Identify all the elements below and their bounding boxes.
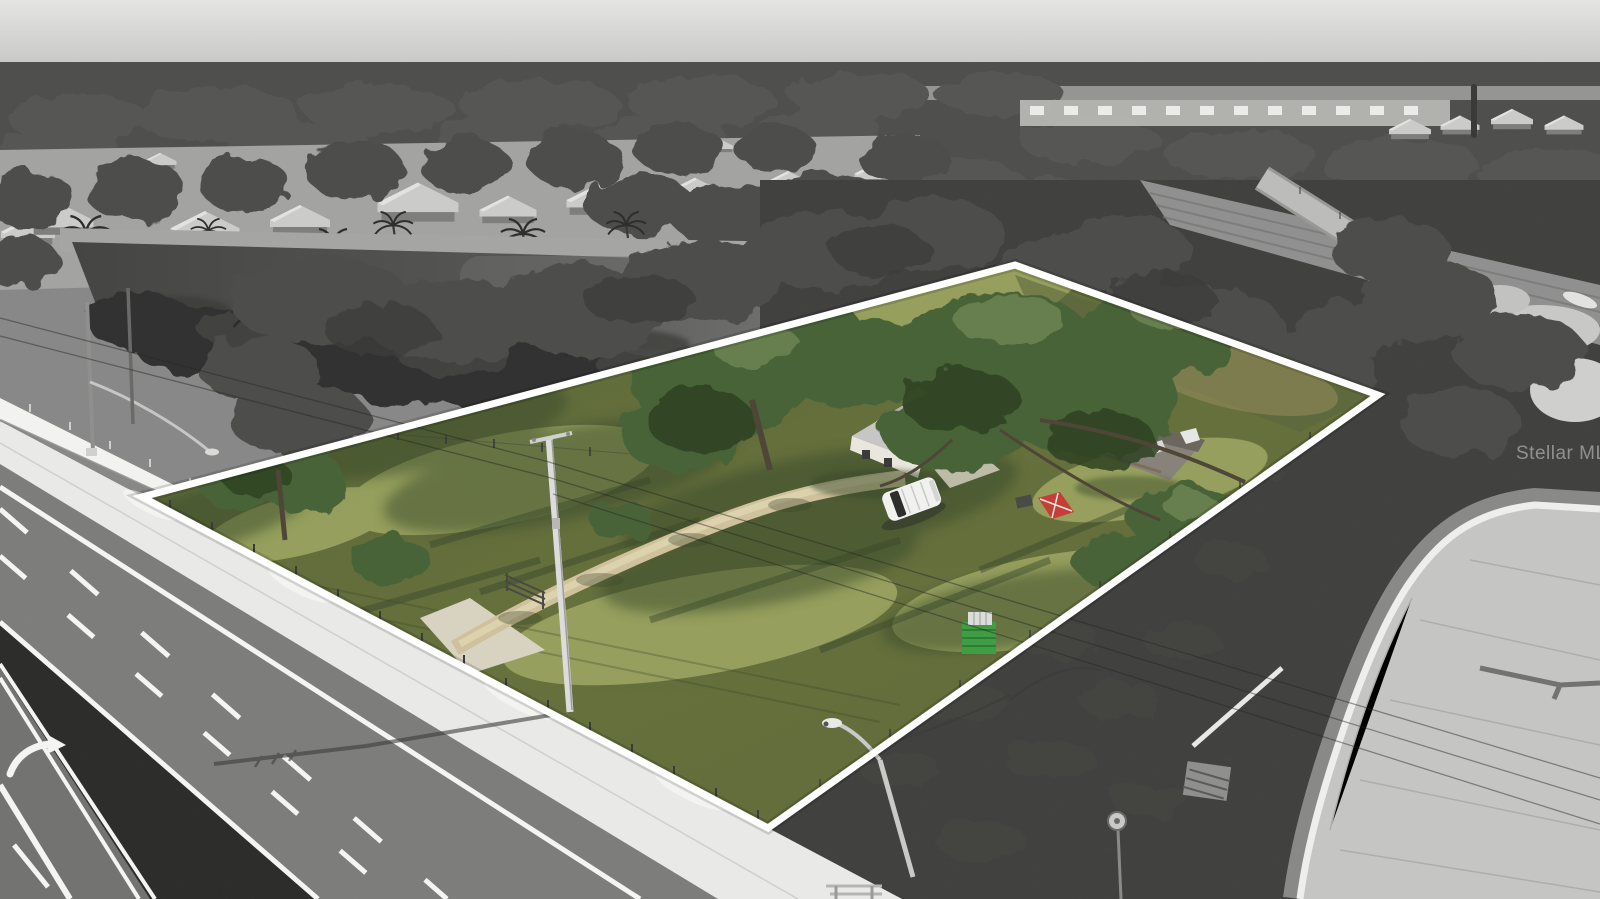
aerial-photo-canvas: Stellar MLS — [0, 0, 1600, 899]
wood-pallet — [1182, 761, 1231, 801]
cypress-tree — [1471, 84, 1477, 138]
watermark: Stellar MLS — [1516, 443, 1600, 464]
aerial-photo: Stellar MLS — [0, 0, 1600, 899]
